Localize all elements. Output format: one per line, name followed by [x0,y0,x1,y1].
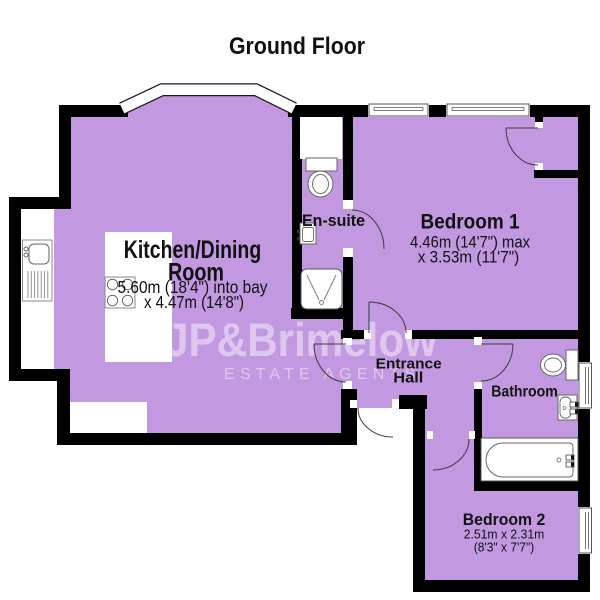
svg-text:En-suite: En-suite [302,211,365,230]
svg-text:x 3.53m (11'7"): x 3.53m (11'7") [418,248,520,267]
svg-text:Ground Floor: Ground Floor [229,33,365,60]
svg-text:Hall: Hall [393,370,423,387]
svg-text:Bathroom: Bathroom [491,384,558,401]
svg-text:Bedroom 1: Bedroom 1 [421,211,520,234]
svg-text:x 4.47m (14'8"): x 4.47m (14'8") [144,292,244,312]
svg-text:(8'3" x 7'7"): (8'3" x 7'7") [474,540,535,555]
